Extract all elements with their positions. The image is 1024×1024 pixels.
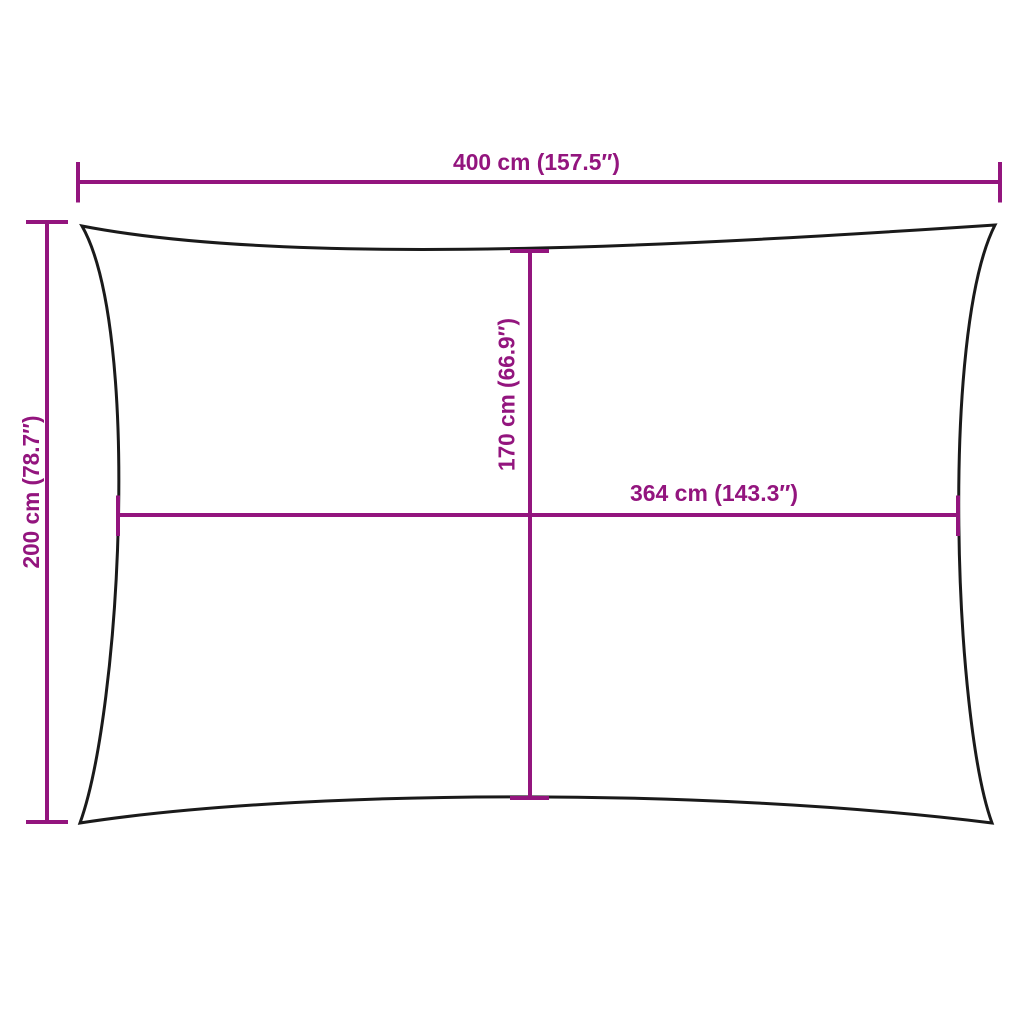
svg-text:400 cm (157.5″): 400 cm (157.5″) [453,149,620,175]
svg-text:200 cm (78.7″): 200 cm (78.7″) [18,416,44,569]
svg-text:364 cm (143.3″): 364 cm (143.3″) [630,480,798,506]
svg-text:170 cm (66.9″): 170 cm (66.9″) [494,318,520,471]
